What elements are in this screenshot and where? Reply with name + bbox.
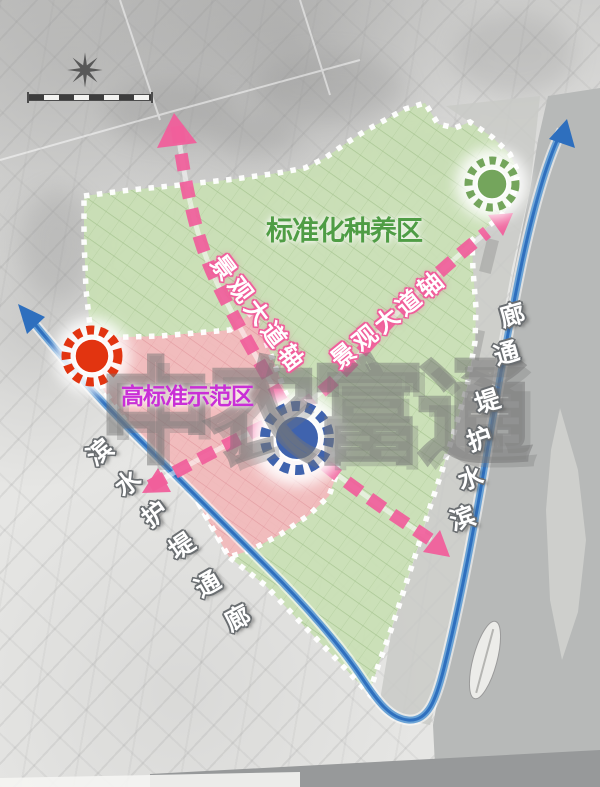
north-arrow-icon <box>63 48 107 92</box>
node-green <box>456 148 528 220</box>
planning-map: 中农富通 标准化种养区 高标准示范区 景观大道轴 景观大道轴 滨水护堤通廊 滨水… <box>0 0 600 787</box>
pink-zone-label: 高标准示范区 <box>121 377 253 411</box>
scale-bar <box>28 94 152 101</box>
green-zone-label: 标准化种养区 <box>266 209 422 248</box>
